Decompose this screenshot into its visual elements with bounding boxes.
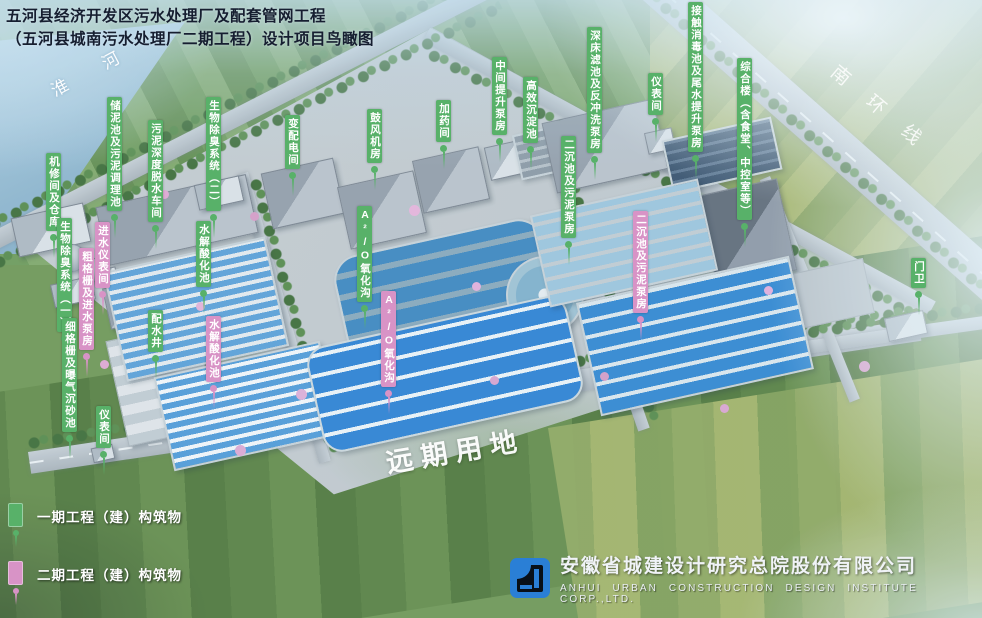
label-text: 细格栅及曝气沉砂池 bbox=[62, 318, 77, 432]
facility-label-power-distribution: 变配电间 bbox=[285, 115, 300, 179]
label-pointer-pin bbox=[200, 290, 207, 297]
label-pointer-pin bbox=[99, 291, 106, 298]
label-pointer-pin bbox=[210, 385, 217, 392]
label-pointer-pin bbox=[741, 223, 748, 230]
facility-label-dosing-room: 加药间 bbox=[436, 100, 451, 152]
facility-label-instrument-room-sw: 仪表间 bbox=[96, 406, 111, 458]
legend-label: 二期工程（建）构筑物 bbox=[37, 561, 182, 584]
label-text: 高效沉淀池 bbox=[523, 77, 538, 143]
facility-label-a2o-ditch-1: A²/O氧化沟 bbox=[357, 206, 372, 312]
label-text: 鼓风机房 bbox=[367, 109, 382, 163]
label-pointer-pin bbox=[111, 214, 118, 221]
label-text: 二沉池及污泥泵房 bbox=[561, 136, 576, 238]
label-text: 二沉池及污泥泵房 bbox=[633, 211, 648, 313]
facility-label-hydrolysis-2: 水解酸化池 bbox=[206, 316, 221, 392]
label-text: 污泥深度脱水车间 bbox=[148, 120, 163, 222]
legend-item-phase1: 一期工程（建）构筑物 bbox=[8, 503, 182, 547]
project-title-line1: 五河县经济开发区污水处理厂及配套管网工程 bbox=[6, 5, 374, 28]
phase2-swatch-pin bbox=[8, 561, 23, 605]
project-title: 五河县经济开发区污水处理厂及配套管网工程 （五河县城南污水处理厂二期工程）设计项… bbox=[6, 5, 374, 52]
label-text: 配水井 bbox=[148, 310, 163, 352]
phase1-swatch-pin bbox=[8, 503, 23, 547]
facility-label-hydrolysis-1: 水解酸化池 bbox=[196, 221, 211, 297]
label-text: 生物除臭系统（二） bbox=[206, 97, 221, 211]
facility-label-high-eff-sedimentation: 高效沉淀池 bbox=[523, 77, 538, 153]
facility-label-inlet-instrument-room: 进水仪表间 bbox=[95, 222, 110, 298]
label-pointer-pin bbox=[210, 214, 217, 221]
facility-label-coarse-screen-pump: 粗格栅及进水泵房 bbox=[79, 248, 94, 360]
label-pointer-pin bbox=[371, 166, 378, 173]
label-text: 水解酸化池 bbox=[206, 316, 221, 382]
label-pointer-pin bbox=[152, 225, 159, 232]
legend-label: 一期工程（建）构筑物 bbox=[37, 503, 182, 526]
label-text: 门卫 bbox=[911, 258, 926, 288]
facility-label-instrument-room-ne: 仪表间 bbox=[648, 73, 663, 125]
company-branding: 安徽省城建设计研究总院股份有限公司 ANHUI URBAN CONSTRUCTI… bbox=[510, 556, 982, 607]
label-pointer-pin bbox=[496, 138, 503, 145]
facility-label-a2o-ditch-2: A²/O氧化沟 bbox=[381, 291, 396, 397]
label-pointer-pin bbox=[652, 118, 659, 125]
legend-item-phase2: 二期工程（建）构筑物 bbox=[8, 561, 182, 605]
label-pointer-pin bbox=[361, 305, 368, 312]
label-pointer-pin bbox=[565, 241, 572, 248]
label-text: 仪表间 bbox=[648, 73, 663, 115]
company-name-block: 安徽省城建设计研究总院股份有限公司 ANHUI URBAN CONSTRUCTI… bbox=[560, 556, 982, 605]
label-text: 中间提升泵房 bbox=[492, 57, 507, 135]
company-name-en: ANHUI URBAN CONSTRUCTION DESIGN INSTITUT… bbox=[560, 583, 982, 605]
facility-label-contact-disinfection: 接触消毒池及尾水提升泵房 bbox=[688, 2, 703, 162]
label-pointer-pin bbox=[591, 156, 598, 163]
label-text: 储泥池及污泥调理池 bbox=[107, 97, 122, 211]
label-text: 综合楼（含食堂、中控室等） bbox=[737, 58, 752, 220]
label-pointer-pin bbox=[385, 390, 392, 397]
label-pointer-pin bbox=[637, 316, 644, 323]
company-logo-icon bbox=[510, 556, 550, 607]
label-text: 进水仪表间 bbox=[95, 222, 110, 288]
label-text: A²/O氧化沟 bbox=[357, 206, 372, 302]
label-text: A²/O氧化沟 bbox=[381, 291, 396, 387]
label-pointer-pin bbox=[66, 435, 73, 442]
facility-label-admin-building: 综合楼（含食堂、中控室等） bbox=[737, 58, 752, 230]
legend: 一期工程（建）构筑物 二期工程（建）构筑物 bbox=[8, 503, 182, 618]
label-text: 接触消毒池及尾水提升泵房 bbox=[688, 2, 703, 152]
label-pointer-pin bbox=[692, 155, 699, 162]
facility-label-fine-screen-grit: 细格栅及曝气沉砂池 bbox=[62, 318, 77, 442]
facility-label-deodorization-2: 生物除臭系统（二） bbox=[206, 97, 221, 221]
facility-label-intermediate-pump: 中间提升泵房 bbox=[492, 57, 507, 145]
label-pointer-pin bbox=[83, 353, 90, 360]
label-text: 深床滤池及反冲洗泵房 bbox=[587, 27, 602, 153]
label-pointer-pin bbox=[289, 172, 296, 179]
facility-label-secondary-clarifier-2: 二沉池及污泥泵房 bbox=[633, 211, 648, 323]
label-text: 变配电间 bbox=[285, 115, 300, 169]
facility-label-blower-house: 鼓风机房 bbox=[367, 109, 382, 173]
label-text: 仪表间 bbox=[96, 406, 111, 448]
label-pointer-pin bbox=[100, 451, 107, 458]
facility-label-gate-house: 门卫 bbox=[911, 258, 926, 298]
birdseye-rendering-page: 淮 河 南环线 远期用地 储泥池及污泥调理池 污泥深度脱水车间 生物除臭系统（二… bbox=[0, 0, 982, 618]
label-text: 加药间 bbox=[436, 100, 451, 142]
label-pointer-pin bbox=[50, 234, 57, 241]
label-pointer-pin bbox=[440, 145, 447, 152]
label-text: 水解酸化池 bbox=[196, 221, 211, 287]
company-name-cn: 安徽省城建设计研究总院股份有限公司 bbox=[560, 556, 982, 579]
label-pointer-pin bbox=[527, 146, 534, 153]
project-title-line2: （五河县城南污水处理厂二期工程）设计项目鸟瞰图 bbox=[6, 28, 374, 51]
facility-label-sludge-dewatering: 污泥深度脱水车间 bbox=[148, 120, 163, 232]
label-pointer-pin bbox=[915, 291, 922, 298]
label-pointer-pin bbox=[152, 355, 159, 362]
label-text: 粗格栅及进水泵房 bbox=[79, 248, 94, 350]
label-text: 生物除臭系统（一） bbox=[57, 218, 72, 332]
facility-label-secondary-clarifier-1: 二沉池及污泥泵房 bbox=[561, 136, 576, 248]
facility-label-deep-bed-filter: 深床滤池及反冲洗泵房 bbox=[587, 27, 602, 163]
facility-label-distribution-well: 配水井 bbox=[148, 310, 163, 362]
facility-label-sludge-storage: 储泥池及污泥调理池 bbox=[107, 97, 122, 221]
